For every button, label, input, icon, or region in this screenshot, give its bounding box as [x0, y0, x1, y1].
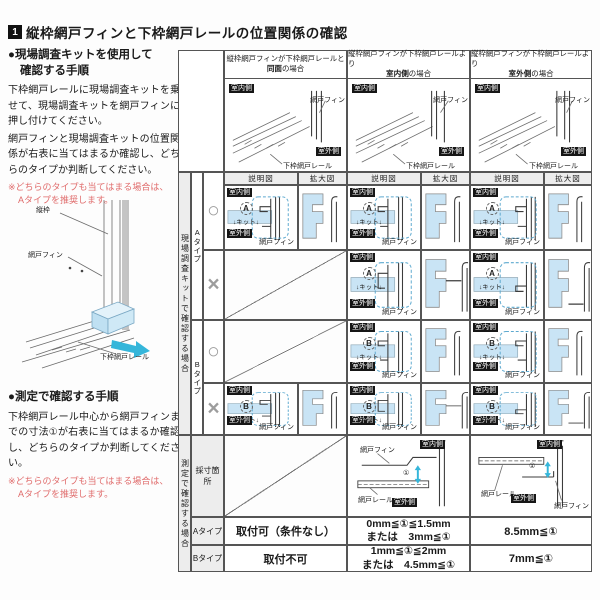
saisun-diagram-col3: 室内側 ① 網戸レール 室外側 網戸フィン: [470, 435, 592, 517]
explain-subheader: 説明図: [470, 172, 544, 185]
ok-mark: ○: [203, 172, 224, 250]
column-header-diagram-2: 室内側 網戸フィン 室外側 下枠網戸レール: [348, 79, 469, 172]
tatewaku-label: 縦枠: [36, 205, 50, 215]
indoor-tag: 室内側: [350, 386, 375, 395]
kit-paragraph-1: 下枠網戸レールに現場調査キットを乗せて、現場調査キットを網戸フィンに押し付けてく…: [8, 83, 180, 130]
corner-perspective-diagram: 縦枠 網戸フィン 下枠網戸レール: [12, 192, 176, 380]
enlarged-drawing: [545, 251, 591, 319]
indoor-tag: 室内側: [473, 323, 498, 332]
section-number-badge: 1: [8, 25, 22, 39]
saisun-diagram-col2: 室内側 網戸フィン ① 網戸レール 室外側: [347, 435, 470, 517]
enlarged-cell-b-ng-col1: [298, 383, 347, 435]
explain-cell-b-ok-col3: 室内側 室外側 B↓キット↓ 網戸フィン: [470, 320, 544, 383]
outdoor-tag: 室外側: [392, 498, 417, 507]
indoor-tag: 室内側: [352, 84, 377, 93]
measure-note-line2: Aタイプを推奨します。: [8, 488, 180, 501]
explain-cell-a-ng-col3: 室内側 室外側 A↓キット↓ 網戸フィン: [470, 250, 544, 320]
fin-label: 網戸フィン: [28, 250, 63, 260]
bottom-rail-label: 下枠網戸レール: [100, 352, 149, 362]
fin-label: 網戸フィン: [433, 95, 468, 105]
measure-paragraph: 下枠網戸レール中心から網戸フィンまでの寸法①が右表に当てはまるか確認し、どちらの…: [8, 410, 180, 472]
value-b-col3: 7mm≦①: [470, 545, 592, 572]
kit-mark: A↓キット↓: [475, 202, 509, 226]
indoor-tag: 室内側: [350, 188, 375, 197]
enlarged-drawing: [422, 384, 469, 434]
corner-diagram-drawing: [12, 192, 176, 380]
fin-label: 網戸フィン: [555, 95, 590, 105]
explain-cell-b-ng-col1: 室内側 室外側 B↓キット↓ 網戸フィン: [224, 383, 298, 435]
column-title-1-line1: 縦枠網戸フィンが下枠網戸レールと: [226, 54, 344, 64]
enlarged-cell-a-ng-col3: [544, 250, 592, 320]
explain-cell-a-ok-col2: 室内側 室外側 A↓キット↓ 網戸フィン: [347, 185, 421, 250]
column-title-3-line1: 縦枠網戸フィンが下枠網戸レールより: [471, 49, 591, 69]
ng-mark: ×: [203, 383, 224, 435]
fin-label: 網戸フィン: [505, 422, 540, 432]
enlarged-cell-b-ng-col2: [421, 383, 470, 435]
column-header-diagram-3: 室内側 網戸フィン 室外側 下枠網戸レール: [471, 79, 591, 172]
fin-label: 網戸フィン: [505, 307, 540, 317]
explain-subheader: 説明図: [224, 172, 298, 185]
enlarged-drawing: [422, 251, 469, 319]
column-title-1-line2: 同面の場合: [267, 64, 304, 74]
value-a-col2-lines: 0mm≦①≦1.5mm または 3mm≦①: [366, 518, 450, 544]
indoor-tag: 室内側: [475, 84, 500, 93]
crossed-cell-a-ng-col1: [224, 250, 347, 320]
kit-paragraph-2: 網戸フィンと現場調査キットの位置関係が右表に当てはまるか確認し、どちらのタイプか…: [8, 132, 180, 179]
saisun-label: 採寸箇所: [191, 435, 224, 517]
outdoor-tag: 室外側: [350, 299, 375, 308]
kit-note-line1: ※どちらのタイプも当てはまる場合は、: [8, 182, 168, 192]
outdoor-tag: 室外側: [473, 299, 498, 308]
type-b-sidebar: Bタイプ: [191, 320, 203, 435]
enlarged-subheader: 拡大図: [421, 172, 470, 185]
indoor-tag: 室内側: [537, 440, 562, 449]
value-b-col2: 1mm≦①≦2mm または 4.5mm≦①: [347, 545, 470, 572]
enlarged-drawing: [422, 321, 469, 382]
value-a-col3: 8.5mm≦①: [470, 517, 592, 545]
fin-label: 網戸フィン: [382, 237, 417, 247]
enlarged-drawing: [545, 321, 591, 382]
column-title-3: 縦枠網戸フィンが下枠網戸レールより 室外側の場合: [471, 51, 591, 79]
kit-mark: B↓キット↓: [229, 400, 263, 424]
column-header-3: 縦枠網戸フィンが下枠網戸レールより 室外側の場合 室内側 網戸フィン 室外側 下…: [470, 50, 592, 172]
kit-mark: A↓キット↓: [352, 202, 386, 226]
kit-mark: B↓キット↓: [475, 337, 509, 361]
kit-check-sidebar: 現場調査キットで確認する場合: [178, 172, 191, 435]
outdoor-tag: 室外側: [511, 494, 536, 503]
row-b-label: Bタイプ: [191, 545, 224, 572]
fin-label: 網戸フィン: [382, 370, 417, 380]
fin-label: 網戸フィン: [360, 445, 395, 455]
outdoor-tag: 室外側: [350, 229, 375, 238]
kit-mark: A↓キット↓: [475, 267, 509, 291]
fin-label: 網戸フィン: [505, 370, 540, 380]
indoor-tag: 室内側: [227, 386, 252, 395]
enlarged-cell-a-ok-col2: [421, 185, 470, 250]
value-a-col2: 0mm≦①≦1.5mm または 3mm≦①: [347, 517, 470, 545]
indoor-tag: 室内側: [350, 323, 375, 332]
fin-label: 網戸フィン: [259, 422, 294, 432]
indoor-tag: 室内側: [473, 253, 498, 262]
bottom-rail-label: 下枠網戸レール: [406, 161, 455, 171]
kit-mark: A↓キット↓: [352, 267, 386, 291]
outdoor-tag: 室外側: [439, 147, 464, 156]
dim-mark: ①: [529, 462, 535, 470]
enlarged-drawing: [299, 186, 346, 249]
enlarged-subheader: 拡大図: [298, 172, 347, 185]
enlarged-cell-a-ng-col2: [421, 250, 470, 320]
column-title-2-line1: 縦枠網戸フィンが下枠網戸レールより: [348, 49, 469, 69]
fin-label: 網戸フィン: [382, 307, 417, 317]
enlarged-cell-a-ok-col3: [544, 185, 592, 250]
indoor-tag: 室内側: [350, 253, 375, 262]
ok-mark: ○: [203, 320, 224, 383]
measure-sidebar: 測定で確認する場合: [178, 435, 191, 572]
column-title-1: 縦枠網戸フィンが下枠網戸レールと 同面の場合: [225, 51, 346, 79]
crossed-cell-b-ok-col1: [224, 320, 347, 383]
kit-procedure-section: ●現場調査キットを使用して 確認する手順 下枠網戸レールに現場調査キットを乗せて…: [8, 48, 180, 207]
value-b-col2-lines: 1mm≦①≦2mm または 4.5mm≦①: [362, 545, 455, 571]
outdoor-tag: 室外側: [350, 362, 375, 371]
measure-note: ※どちらのタイプも当てはまる場合は、 Aタイプを推奨します。: [8, 475, 180, 501]
column-header-diagram-1: 室内側 網戸フィン 室外側 下枠網戸レール: [225, 79, 346, 172]
rail-label: 網戸レール: [358, 495, 393, 505]
bottom-rail-label: 下枠網戸レール: [529, 161, 578, 171]
indoor-tag: 室内側: [227, 188, 252, 197]
value-a-col1: 取付可（条件なし）: [224, 517, 347, 545]
fin-label: 網戸フィン: [310, 95, 345, 105]
bottom-rail-label: 下枠網戸レール: [283, 161, 332, 171]
type-a-sidebar: Aタイプ: [191, 172, 203, 320]
dim-mark: ①: [403, 469, 409, 477]
measure-heading: ●測定で確認する手順: [8, 390, 180, 406]
kit-mark: B↓キット↓: [352, 400, 386, 424]
fin-label: 網戸フィン: [505, 237, 540, 247]
enlarged-cell-b-ok-col2: [421, 320, 470, 383]
ng-mark: ×: [203, 250, 224, 320]
kit-heading-line1: ●現場調査キットを使用して: [8, 49, 153, 61]
enlarged-cell-b-ng-col3: [544, 383, 592, 435]
outdoor-tag: 室外側: [473, 362, 498, 371]
column-header-2: 縦枠網戸フィンが下枠網戸レールより 室内側の場合 室内側 網戸フィン 室外側 下…: [347, 50, 470, 172]
outdoor-tag: 室外側: [316, 147, 341, 156]
indoor-tag: 室内側: [420, 440, 445, 449]
kit-heading-line2: 確認する手順: [8, 64, 180, 80]
measure-procedure-section: ●測定で確認する手順 下枠網戸レール中心から網戸フィンまでの寸法①が右表に当ては…: [8, 390, 180, 501]
measure-note-line1: ※どちらのタイプも当てはまる場合は、: [8, 476, 168, 486]
indoor-tag: 室内側: [229, 84, 254, 93]
outdoor-tag: 室外側: [561, 147, 586, 156]
enlarged-drawing: [545, 186, 591, 249]
fin-label: 網戸フィン: [382, 422, 417, 432]
explain-cell-b-ng-col3: 室内側 室外側 B↓キット↓ 網戸フィン: [470, 383, 544, 435]
explain-cell-a-ng-col2: 室内側 室外側 A↓キット↓ 網戸フィン: [347, 250, 421, 320]
enlarged-subheader: 拡大図: [544, 172, 592, 185]
fin-label: 網戸フィン: [259, 237, 294, 247]
table-corner-cell: [178, 50, 224, 172]
enlarged-cell-b-ok-col3: [544, 320, 592, 383]
crossed-cell-saisun-col1: [224, 435, 347, 517]
kit-procedure-heading: ●現場調査キットを使用して 確認する手順: [8, 48, 180, 79]
fin-label: 網戸フィン: [554, 501, 589, 511]
value-b-col1: 取付不可: [224, 545, 347, 572]
kit-mark: B↓キット↓: [352, 337, 386, 361]
column-title-2: 縦枠網戸フィンが下枠網戸レールより 室内側の場合: [348, 51, 469, 79]
explain-subheader: 説明図: [347, 172, 421, 185]
kit-mark: A↓キット↓: [229, 202, 263, 226]
explain-cell-a-ok-col1: 室内側 室外側 A↓キット↓ 網戸フィン: [224, 185, 298, 250]
outdoor-tag: 室外側: [473, 229, 498, 238]
explain-cell-a-ok-col3: 室内側 室外側 A↓キット↓ 網戸フィン: [470, 185, 544, 250]
kit-mark: B↓キット↓: [475, 400, 509, 424]
indoor-tag: 室内側: [473, 188, 498, 197]
page-title: 縦枠網戸フィンと下枠網戸レールの位置関係の確認: [26, 22, 348, 42]
enlarged-drawing: [299, 384, 346, 434]
outdoor-tag: 室外側: [227, 229, 252, 238]
enlarged-cell-a-ok-col1: [298, 185, 347, 250]
column-header-1: 縦枠網戸フィンが下枠網戸レールと 同面の場合 室内側 網戸フィン 室外側 下枠網…: [224, 50, 347, 172]
page-header: 1 縦枠網戸フィンと下枠網戸レールの位置関係の確認: [8, 22, 348, 42]
enlarged-drawing: [422, 186, 469, 249]
explain-cell-b-ok-col2: 室内側 室外側 B↓キット↓ 網戸フィン: [347, 320, 421, 383]
row-a-label: Aタイプ: [191, 517, 224, 545]
enlarged-drawing: [545, 384, 591, 434]
explain-cell-b-ng-col2: 室内側 室外側 B↓キット↓ 網戸フィン: [347, 383, 421, 435]
indoor-tag: 室内側: [473, 386, 498, 395]
manual-page: 1 縦枠網戸フィンと下枠網戸レールの位置関係の確認 ●現場調査キットを使用して …: [0, 0, 600, 600]
